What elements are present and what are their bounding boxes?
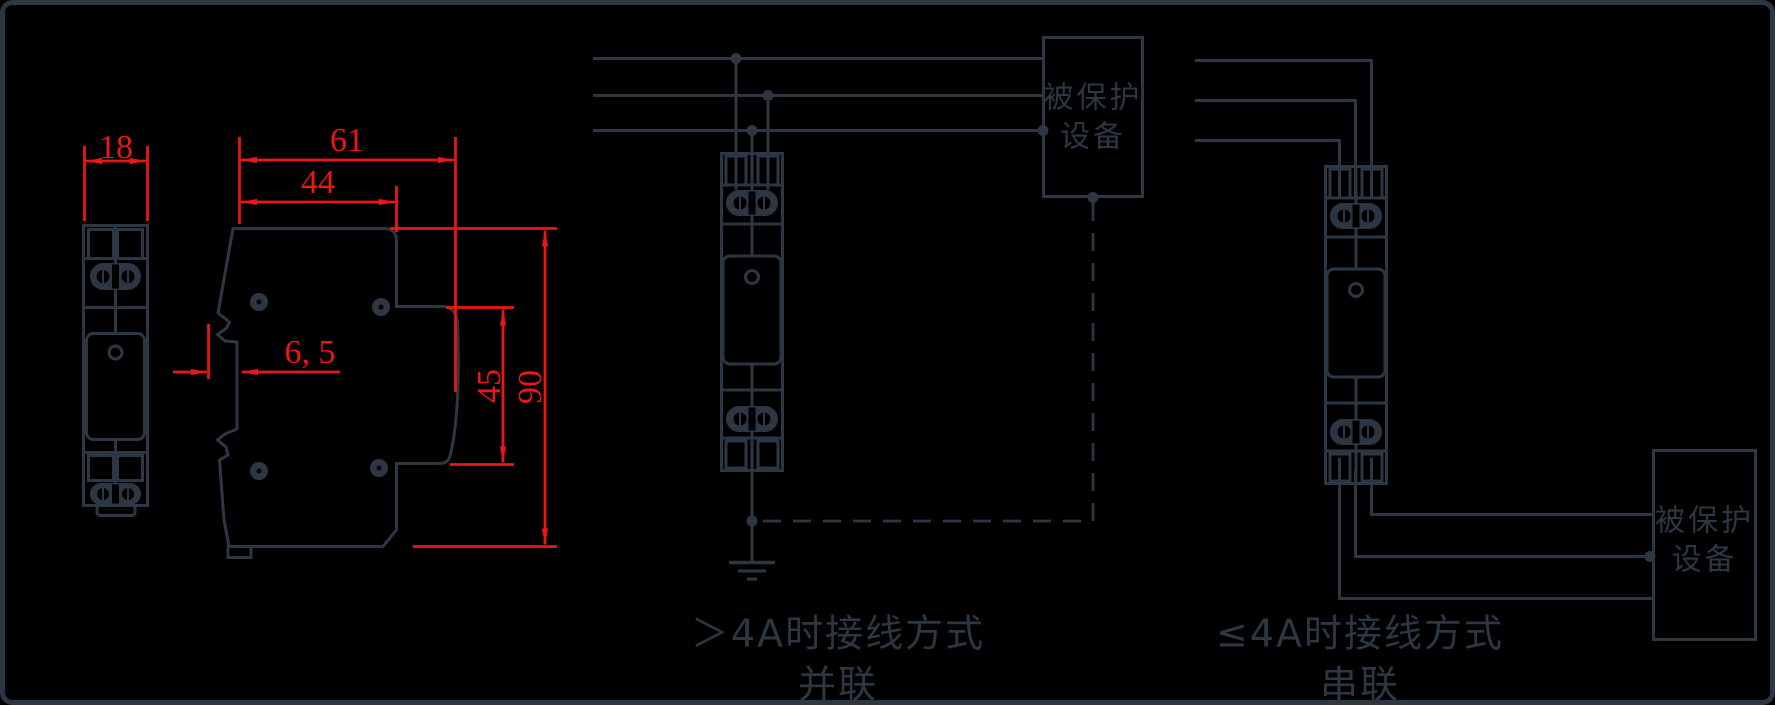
junction-dot: [763, 90, 774, 101]
side-view: [218, 229, 459, 558]
dimension-45-label: 45: [471, 369, 508, 403]
ground-symbol: [729, 526, 775, 579]
front-terminal-window: [89, 456, 114, 481]
dimension-44: 44: [241, 164, 397, 232]
protected-device-label-line2: 设备: [1060, 120, 1126, 155]
front-bottom-clip: [97, 506, 135, 516]
series-wiring-diagram: 被保护 设备 ≤4A时接线方式 串联: [1195, 61, 1756, 705]
protected-device-label-line1: 被保护: [1044, 81, 1143, 116]
dimension-61-label: 61: [330, 122, 364, 159]
dimension-61: 61: [240, 122, 456, 392]
surge-protector-device: [722, 154, 783, 471]
technical-drawing-canvas: 18 61 44 6, 5 45 9: [0, 0, 1775, 705]
dimension-6-5: 6, 5: [173, 324, 340, 379]
outgoing-wire-1: [1372, 458, 1654, 515]
surge-protector-device: [1326, 167, 1387, 484]
junction-dot: [747, 125, 758, 136]
protected-device-box: [1044, 38, 1143, 197]
junction-dot: [731, 53, 742, 64]
drawing-svg: 18 61 44 6, 5 45 9: [0, 0, 1775, 705]
front-terminal-window: [118, 230, 143, 259]
side-bottom-foot: [228, 547, 251, 558]
parallel-wiring-diagram: 被保护 设备 ＞4A时接线方式 并联: [593, 38, 1143, 705]
side-view-outline: [218, 229, 459, 547]
dashed-return-wire: [758, 203, 1093, 521]
protected-device-label-line2: 设备: [1672, 543, 1738, 578]
dimension-18-label: 18: [99, 129, 133, 166]
dimension-6-5-label: 6, 5: [285, 334, 336, 371]
front-terminal-window: [118, 456, 143, 481]
side-screw-bosses: [250, 293, 390, 480]
protected-device-label-line1: 被保护: [1655, 504, 1754, 539]
front-terminal-window: [89, 230, 114, 259]
dimension-90-label: 90: [512, 370, 549, 404]
dimension-18: 18: [85, 129, 148, 221]
incoming-wire-1: [1195, 61, 1372, 200]
front-bottom-terminal-screws: [90, 483, 141, 505]
junction-dot: [747, 516, 758, 527]
parallel-caption-line2: 并联: [798, 662, 878, 705]
series-caption-line1: ≤4A时接线方式: [1216, 611, 1504, 655]
front-indicator-circle: [109, 346, 122, 359]
front-view: [84, 225, 148, 516]
front-top-terminal-screws: [90, 263, 141, 290]
dimension-44-label: 44: [301, 164, 335, 201]
incoming-wire-3: [1195, 141, 1340, 200]
parallel-caption-line1: ＞4A时接线方式: [691, 611, 985, 655]
series-caption-line2: 串联: [1320, 662, 1400, 705]
